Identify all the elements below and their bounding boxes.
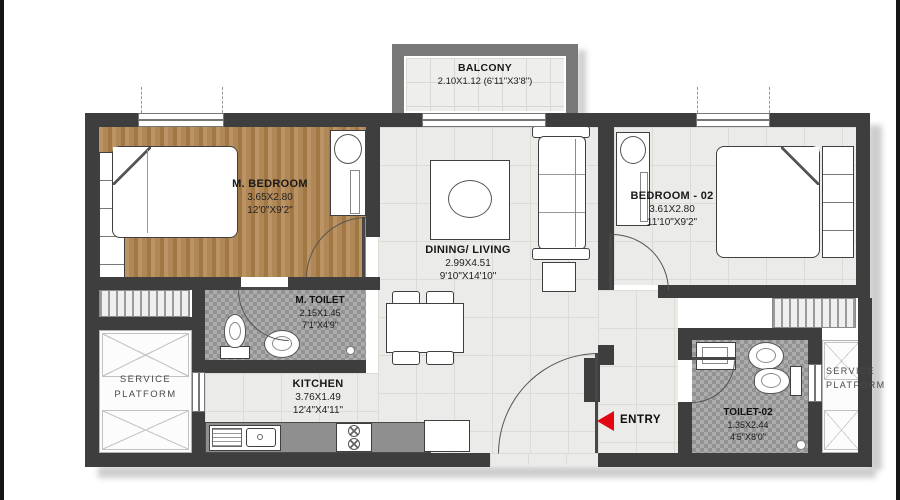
m-bedroom-dims-ft: 12'0"X9'2" <box>190 204 350 217</box>
wall-m-bedroom-bottom <box>99 277 241 290</box>
wall-toilet-02-top <box>678 328 822 340</box>
bedroom-02-dresser-stool <box>620 136 646 164</box>
wall-service-divider <box>192 412 205 453</box>
m-bedroom-dims-m: 3.65X2.80 <box>190 191 350 204</box>
service-platform-left-line2: PLATFORM <box>99 387 192 402</box>
dining-living-dims-ft: 9'10"X14'10" <box>388 270 548 283</box>
m-bedroom-dresser-stool <box>334 134 362 164</box>
window-bedroom-02 <box>696 113 770 127</box>
door-leaf-m-bedroom <box>362 217 365 277</box>
toilet-02-label: TOILET-02 1.35X2.44 4'5"X8'0" <box>668 407 828 443</box>
projection-dash-1 <box>141 87 142 113</box>
balcony-label: BALCONY 2.10X1.12 (6'11"X3'8") <box>405 62 565 88</box>
bedroom-02-label: BEDROOM - 02 3.61X2.80 11'10"X9'2" <box>592 190 752 229</box>
building-shadow-bottom <box>98 466 876 478</box>
bed-pillow-line <box>147 150 148 233</box>
projection-dash-4 <box>769 87 770 113</box>
bedroom-02-dims-ft: 11'10"X9'2" <box>592 216 752 229</box>
kitchen-sink-drain <box>257 434 263 440</box>
balcony-wall-left <box>392 44 404 116</box>
m-toilet-dims-m: 2.15X1.45 <box>240 307 400 319</box>
wall-bedroom-02-bottom <box>658 285 856 298</box>
balcony-shadow <box>577 50 586 116</box>
dining-chair-4 <box>426 351 454 365</box>
bed-fold-corner <box>113 147 151 185</box>
service-platform-right-line1: SERVICE <box>826 364 900 378</box>
door-leaf-entry <box>595 353 598 453</box>
m-bedroom-shelf <box>350 170 360 214</box>
balcony-wall-right <box>566 44 578 116</box>
bedroom-02-dims-m: 3.61X2.80 <box>592 203 752 216</box>
toilet-02-wc-tank <box>790 366 802 396</box>
service-left-xbox-bottom <box>102 410 189 450</box>
coffee-table-decor <box>448 180 492 218</box>
wall <box>224 113 394 127</box>
sofa <box>538 136 586 250</box>
m-toilet-name: M. TOILET <box>240 295 400 307</box>
wall-m-bedroom-bottom <box>288 277 380 290</box>
projection-dash-3 <box>697 87 698 113</box>
wall-toilet-02-right <box>808 340 822 364</box>
service-platform-right-label: SERVICE PLATFORM <box>826 364 900 392</box>
bed-fold-corner-2 <box>781 147 819 185</box>
kitchen-label: KITCHEN 3.76X1.49 12'4"X4'11" <box>238 378 398 417</box>
entry-label: ENTRY <box>620 414 661 426</box>
louver-band-left <box>99 290 190 317</box>
m-bedroom-label: M. BEDROOM 3.65X2.80 12'0"X9'2" <box>190 178 350 217</box>
service-right-xbox-bottom <box>824 410 859 450</box>
wall-bottom-right <box>598 453 872 467</box>
wall-m-bedroom-right <box>366 127 380 237</box>
entry-arrow-icon <box>597 411 614 431</box>
wall <box>546 113 578 127</box>
service-door-right <box>808 364 822 402</box>
toilet-02-basin-inner <box>756 348 776 363</box>
balcony-name: BALCONY <box>405 62 565 75</box>
m-toilet-drain <box>346 346 355 355</box>
m-bedroom-name: M. BEDROOM <box>190 178 350 191</box>
kitchen-dims-ft: 12'4"X4'11" <box>238 404 398 417</box>
door-leaf-bedroom-02 <box>609 233 612 290</box>
toilet-02-name: TOILET-02 <box>668 407 828 419</box>
service-window-left <box>192 372 205 412</box>
door-leaf-toilet-02 <box>692 357 735 360</box>
m-toilet-label: M. TOILET 2.15X1.45 7'1"X4'9" <box>240 295 400 331</box>
wall-right-upper <box>856 113 870 298</box>
dining-living-name: DINING/ LIVING <box>388 244 548 257</box>
door-leaf-m-toilet <box>240 287 288 290</box>
balcony-sliding-door <box>422 113 546 127</box>
service-platform-left-label: SERVICE PLATFORM <box>99 372 192 402</box>
window-m-bedroom <box>138 113 224 127</box>
hob-burner-2 <box>348 438 360 450</box>
bedroom-02-bedside-shelf <box>822 146 854 258</box>
dining-chair-3 <box>392 351 420 365</box>
wall-service-divider <box>192 290 205 372</box>
service-left-xbox-top <box>102 333 189 377</box>
toilet-02-wc-inner <box>761 373 781 388</box>
kitchen-name: KITCHEN <box>238 378 398 391</box>
m-toilet-dims-ft: 7'1"X4'9" <box>240 319 400 331</box>
balcony-dims: 2.10X1.12 (6'11"X3'8") <box>405 75 565 88</box>
toilet-02-dims-m: 1.35X2.44 <box>668 419 828 431</box>
hob-burner-1 <box>348 425 360 437</box>
dining-living-dims-m: 2.99X4.51 <box>388 257 548 270</box>
sofa-backrest-line <box>575 139 576 247</box>
wall-service-left-top <box>85 317 192 330</box>
toilet-02-dims-ft: 4'5"X8'0" <box>668 431 828 443</box>
kitchen-dims-m: 3.76X1.49 <box>238 391 398 404</box>
floor-plan: BALCONY 2.10X1.12 (6'11"X3'8") M. BEDROO… <box>0 0 900 500</box>
wall-bottom-left <box>85 453 490 467</box>
balcony-wall-top <box>392 44 578 56</box>
wall-toilet-kitchen <box>205 360 366 373</box>
louver-band-right <box>772 298 856 328</box>
page-edge-left <box>0 0 4 500</box>
wall-toilet-02-left <box>678 340 692 360</box>
service-platform-right-line2: PLATFORM <box>826 378 900 392</box>
wall-left <box>85 113 99 467</box>
wall <box>770 113 870 127</box>
wall <box>394 113 422 127</box>
wall <box>576 113 696 127</box>
kitchen-fridge <box>424 420 470 452</box>
wall-stub <box>598 345 614 365</box>
projection-dash-2 <box>222 87 223 113</box>
service-platform-left-line1: SERVICE <box>99 372 192 387</box>
dining-living-label: DINING/ LIVING 2.99X4.51 9'10"X14'10" <box>388 244 548 283</box>
bedroom-02-name: BEDROOM - 02 <box>592 190 752 203</box>
page-edge-right <box>896 0 900 500</box>
kitchen-drainboard <box>212 428 242 447</box>
entry-threshold-floor <box>490 453 598 465</box>
